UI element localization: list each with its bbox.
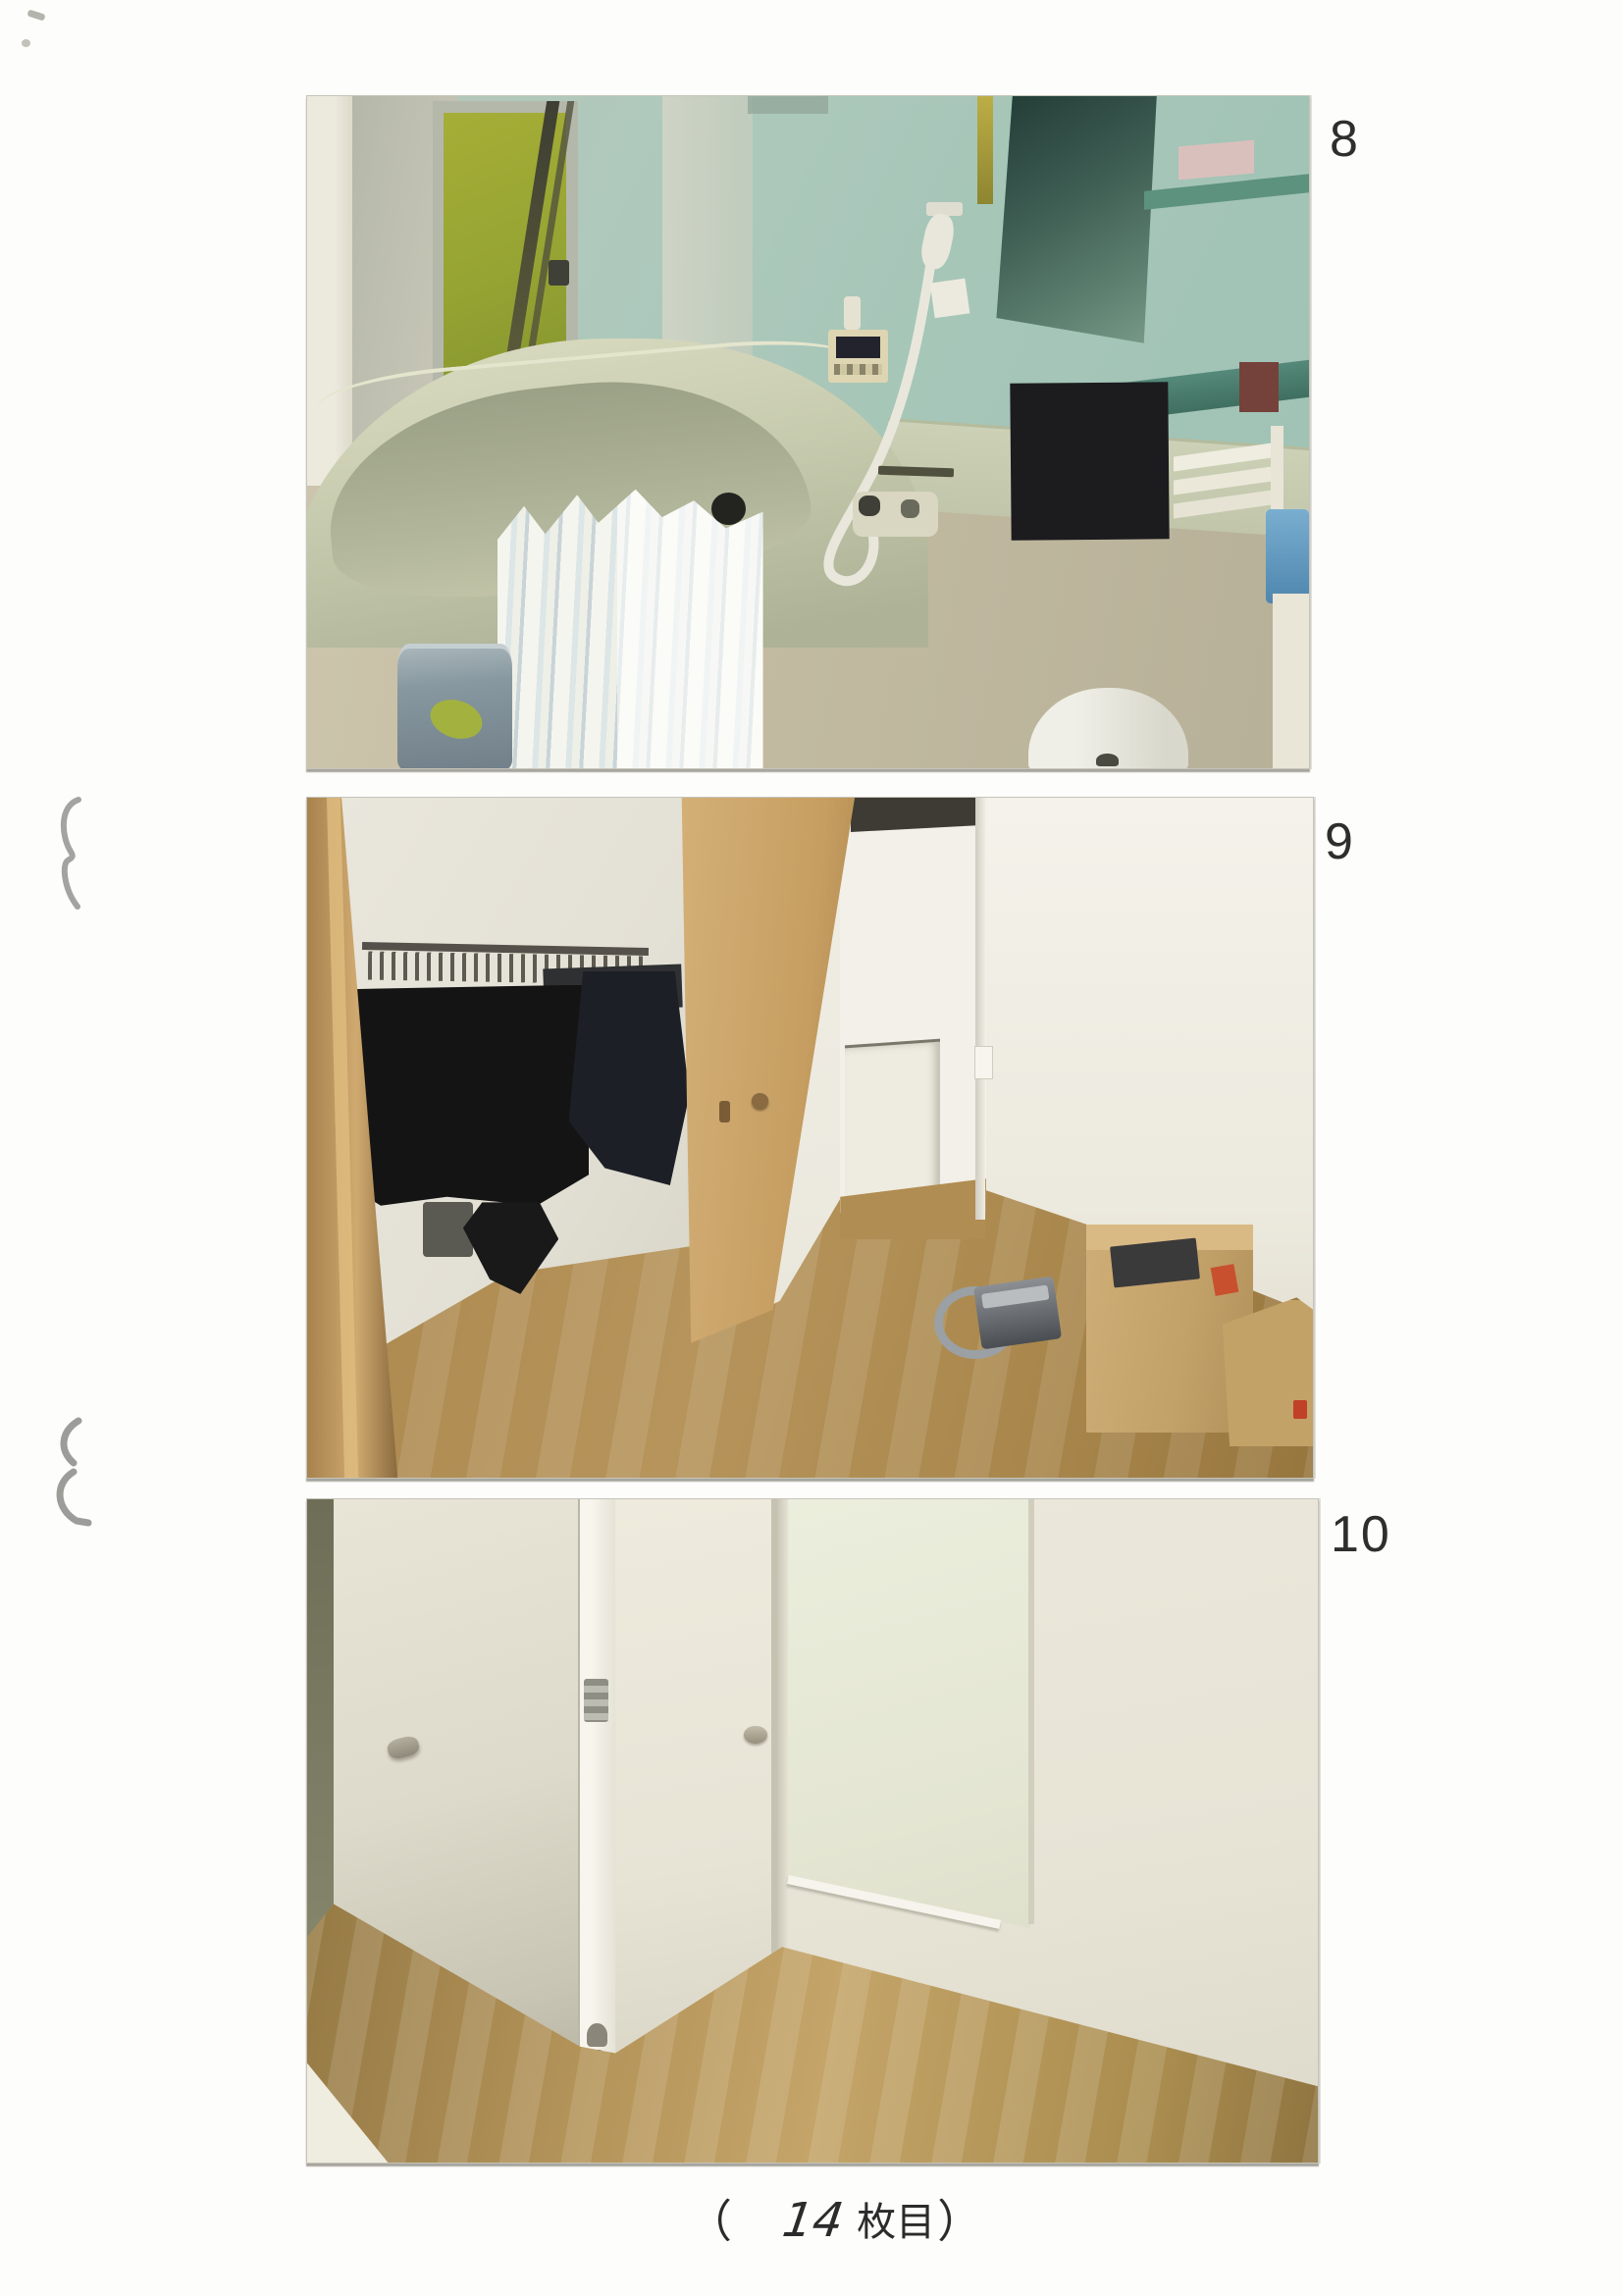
scan-speck [26, 9, 45, 21]
scanned-document-page: 8 [0, 0, 1623, 2296]
light-switch [974, 1046, 993, 1079]
redaction-box [1010, 382, 1170, 541]
margin-brace-mark [47, 795, 90, 914]
page-caption: （ 14 枚目 ） [687, 2196, 1021, 2259]
vacuum-highlight [980, 1284, 1049, 1309]
cover-knob [711, 493, 746, 525]
right-wall-sliver [1273, 594, 1309, 768]
bottom-pivot [587, 2023, 607, 2047]
bucket-contents-green [425, 694, 487, 746]
door-knob [752, 1093, 768, 1109]
photo-number-10: 10 [1331, 1505, 1391, 1564]
faucet [853, 492, 938, 538]
towel-rack-post [1271, 426, 1283, 520]
faucet-knob [901, 499, 919, 518]
caption-sheet-number: 14 [779, 2196, 846, 2245]
photo-number-8: 8 [1330, 110, 1360, 169]
bin-mark [1096, 754, 1119, 767]
wall-upper-panel [788, 1499, 1030, 1937]
folding-bath-cover [497, 490, 763, 768]
cover-glare [617, 490, 763, 768]
box-top-object [1110, 1237, 1200, 1287]
cardboard-box-right [1223, 1297, 1313, 1446]
blue-cloth [1266, 509, 1309, 603]
wall-corner-seam [975, 798, 985, 1220]
caption-open-paren: （ [687, 2196, 732, 2247]
hose-tag [930, 278, 969, 317]
photo-number-9: 9 [1325, 812, 1355, 871]
shower-holder [926, 202, 963, 216]
wall-seam-vertical [1028, 1499, 1033, 1924]
door-edge-plate [719, 1101, 729, 1122]
panel-handle [744, 1726, 767, 1744]
caption-close-paren: ） [937, 2196, 982, 2247]
box2-red-dot [1293, 1400, 1308, 1419]
photo-8-bathroom [306, 95, 1310, 769]
vacuum-body [973, 1277, 1062, 1350]
photo-9-closet-room [306, 797, 1314, 1479]
caption-sheet-label: 枚目 [857, 2196, 935, 2249]
scan-speck [22, 39, 30, 47]
clothes-dark-mass [352, 985, 589, 1206]
box-red-tape [1210, 1264, 1237, 1296]
bucket [397, 644, 512, 769]
hinge-strip [578, 1499, 617, 2076]
faucet-knob [859, 496, 881, 516]
photo-10-white-corner [306, 1498, 1319, 2164]
margin-double-paren-mark [41, 1417, 100, 1533]
door-hinge [584, 1679, 608, 1723]
